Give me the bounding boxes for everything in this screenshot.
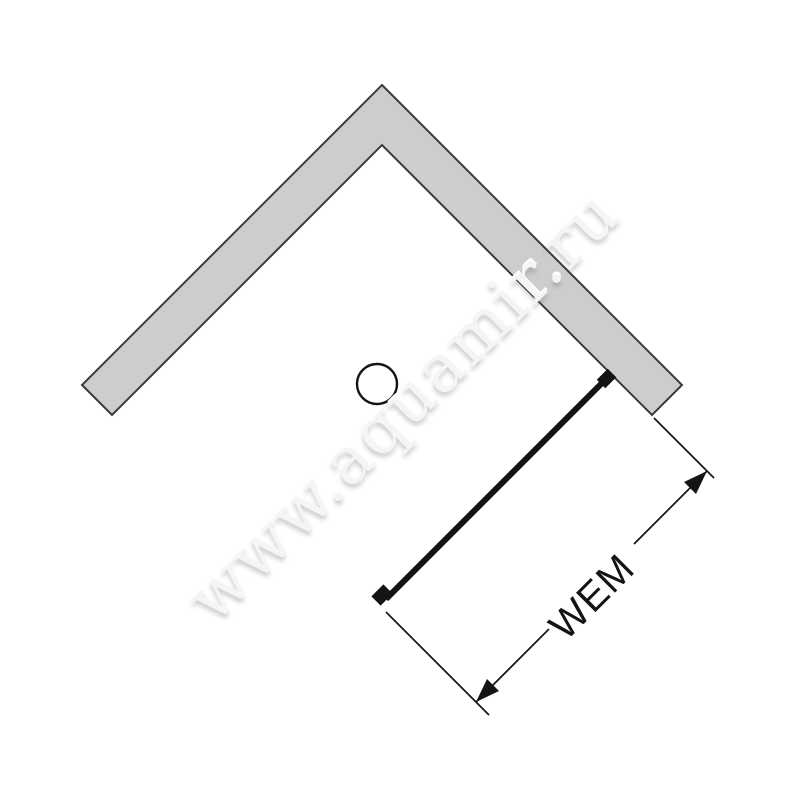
shower-schematic-drawing: WEM	[0, 0, 800, 800]
shower-schematic-canvas: WEM www.aquamir.ru	[0, 0, 800, 800]
wall-profile-cap	[601, 373, 612, 384]
drain-circle	[357, 364, 397, 404]
end-profile-cap	[376, 589, 388, 601]
dimension-label: WEM	[541, 546, 643, 648]
extension-line-top	[654, 418, 714, 478]
extension-line-bottom	[386, 612, 489, 715]
glass-panel-line	[386, 378, 607, 599]
